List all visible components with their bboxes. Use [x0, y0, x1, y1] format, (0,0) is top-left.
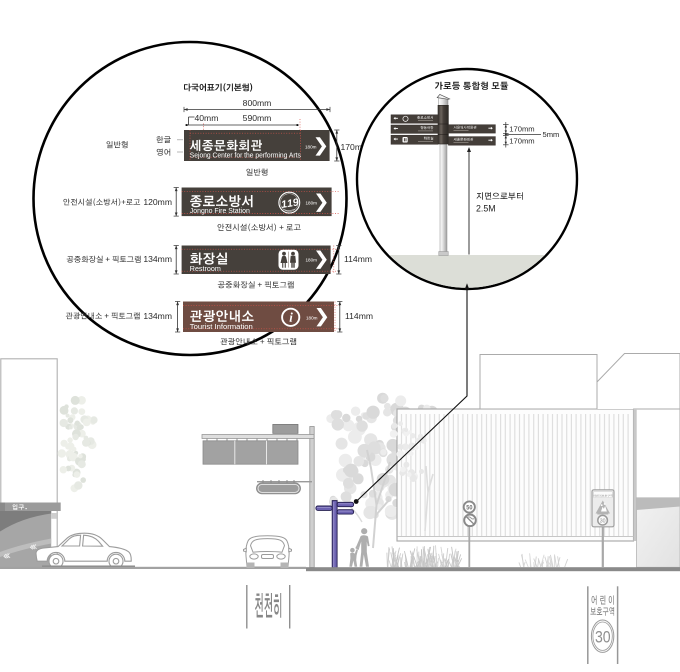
svg-text:180m: 180m	[305, 145, 317, 151]
svg-text:50: 50	[466, 505, 473, 511]
svg-text:134mm: 134mm	[143, 254, 172, 264]
svg-text:Jongno Fire Station: Jongno Fire Station	[190, 208, 250, 215]
svg-text:180m: 180m	[306, 315, 318, 321]
svg-text:134mm: 134mm	[143, 311, 172, 321]
svg-text:30: 30	[600, 518, 606, 524]
svg-text:180m: 180m	[306, 201, 318, 207]
svg-text:Sejong Center for the performi: Sejong Center for the performing Arts	[190, 151, 301, 160]
svg-text:5mm: 5mm	[543, 130, 560, 139]
svg-text:120mm: 120mm	[143, 197, 172, 207]
svg-text:590mm: 590mm	[243, 113, 272, 123]
svg-text:30: 30	[595, 629, 611, 647]
svg-text:40mm: 40mm	[195, 113, 219, 123]
svg-text:Restroom: Restroom	[190, 266, 221, 273]
svg-text:Tourist Information: Tourist Information	[190, 324, 253, 331]
svg-text:170mm: 170mm	[509, 136, 534, 145]
svg-text:114mm: 114mm	[344, 254, 372, 264]
svg-text:2.5M: 2.5M	[476, 204, 496, 214]
svg-text:180m: 180m	[306, 258, 318, 264]
svg-text:800mm: 800mm	[243, 98, 272, 108]
svg-text:114mm: 114mm	[345, 311, 373, 321]
svg-text:170mm: 170mm	[509, 124, 534, 133]
